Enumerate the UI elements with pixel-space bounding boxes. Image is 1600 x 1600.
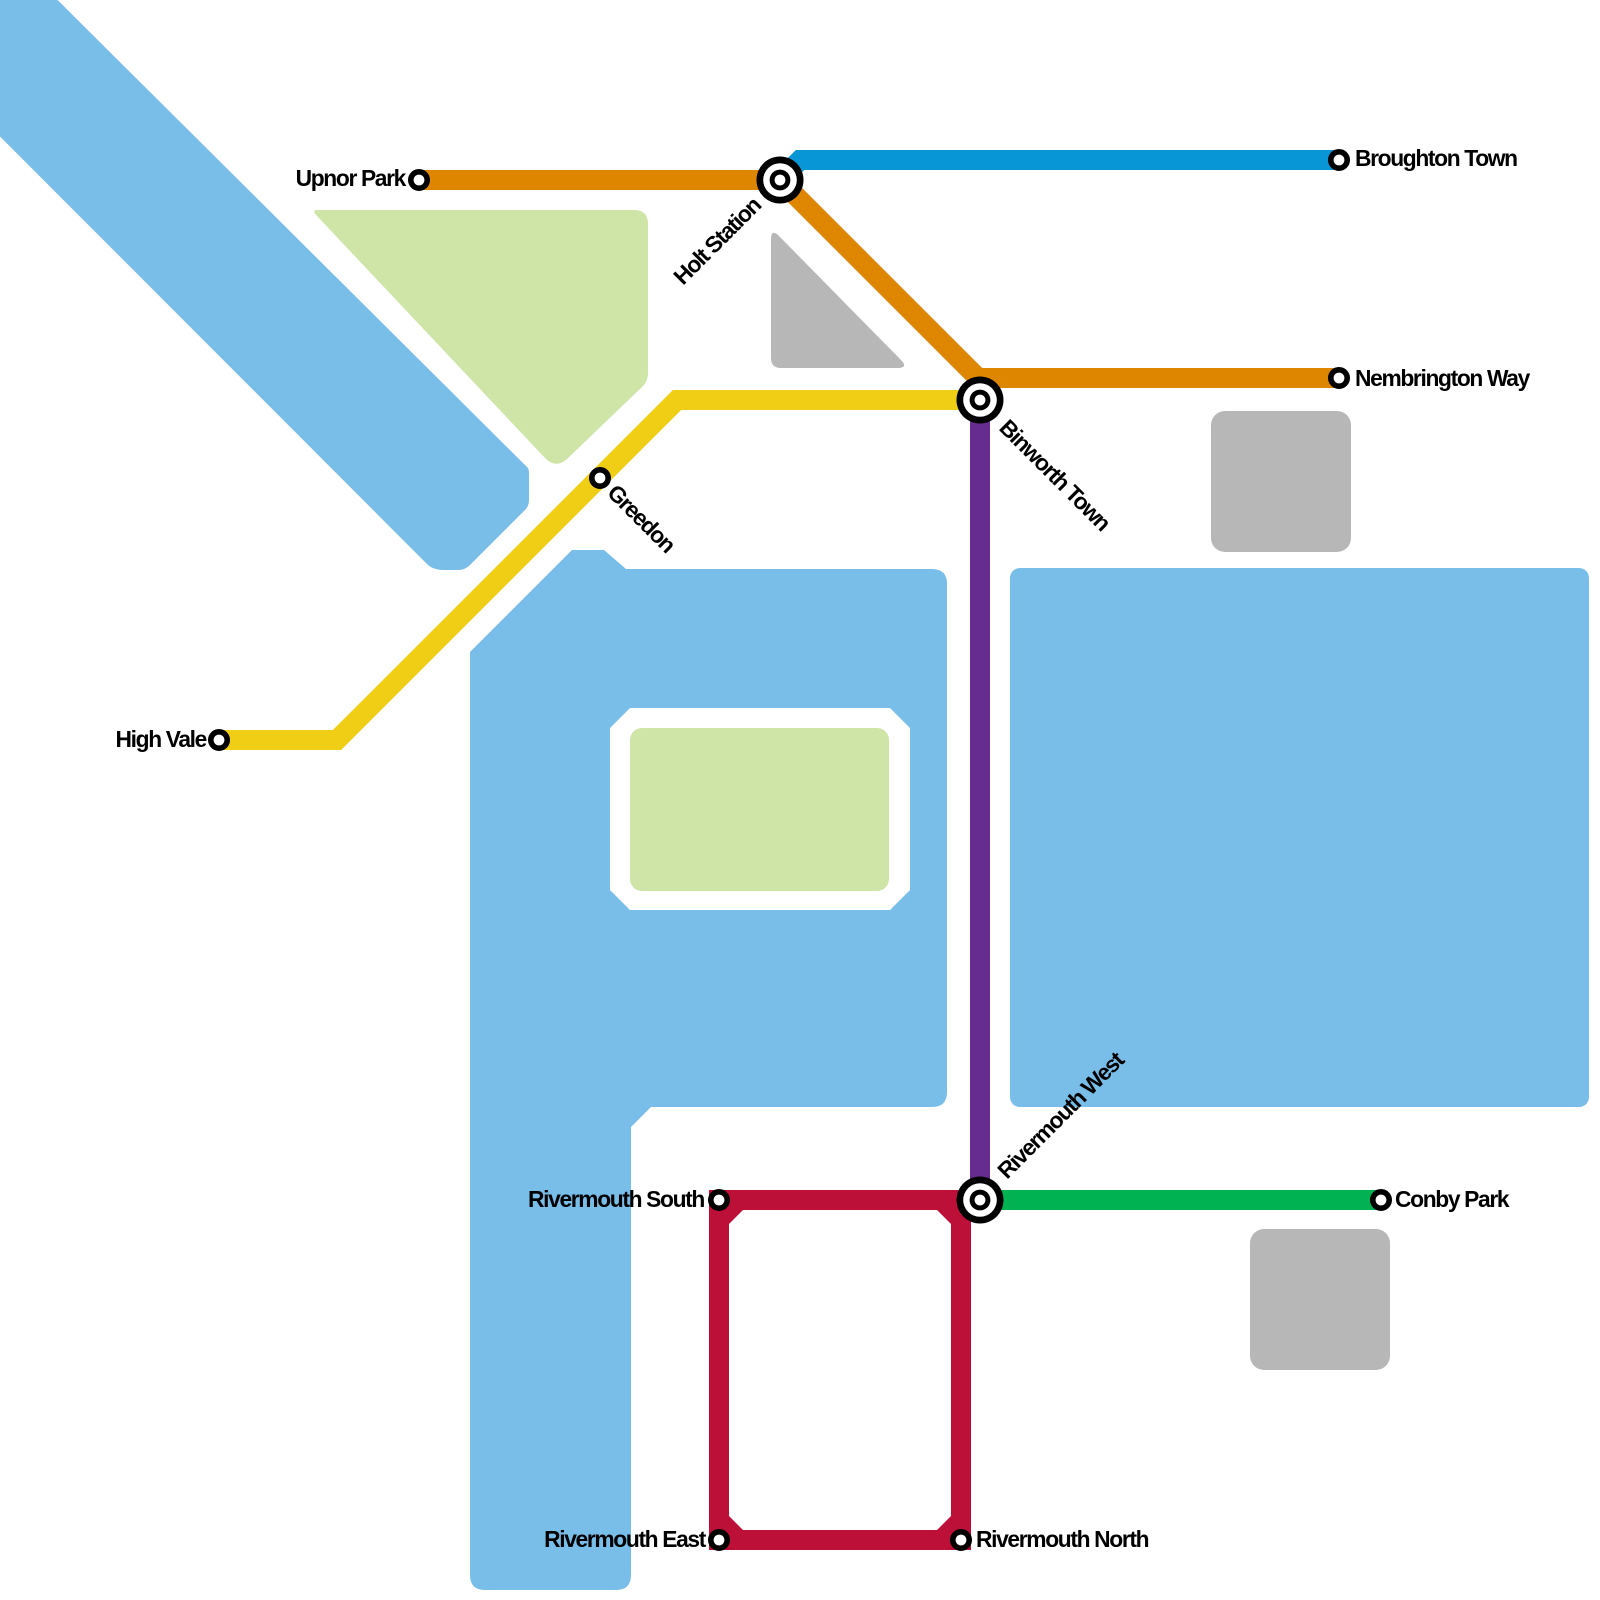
svg-text:Conby Park: Conby Park — [1395, 1186, 1510, 1212]
svg-text:Rivermouth North: Rivermouth North — [976, 1526, 1149, 1552]
svg-text:Broughton Town: Broughton Town — [1355, 145, 1517, 171]
svg-text:Rivermouth East: Rivermouth East — [544, 1526, 707, 1552]
svg-text:Upnor Park: Upnor Park — [296, 165, 407, 191]
svg-text:Nembrington Way: Nembrington Way — [1355, 365, 1531, 391]
svg-text:Rivermouth South: Rivermouth South — [528, 1186, 704, 1212]
svg-text:High Vale: High Vale — [116, 726, 207, 752]
